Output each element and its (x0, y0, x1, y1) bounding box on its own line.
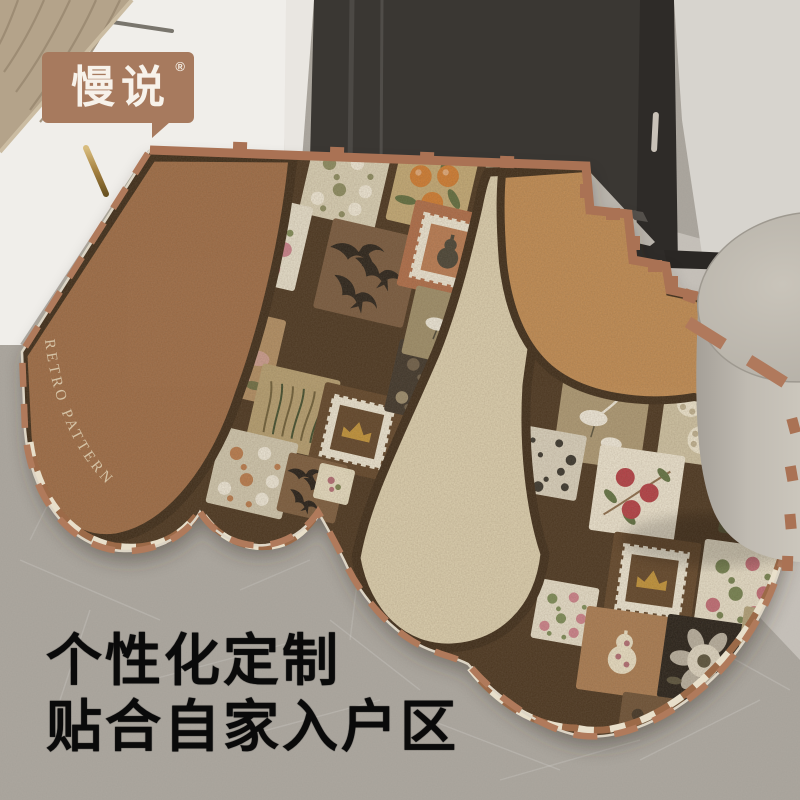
headline-line-2: 贴合自家入户区 (46, 694, 459, 760)
product-photo: RETRO PATTERN (0, 0, 800, 800)
registered-mark: ® (175, 59, 185, 74)
headline-line-1: 个性化定制 (46, 628, 459, 694)
headline: 个性化定制 贴合自家入户区 (46, 628, 459, 760)
door-seam-2 (381, 0, 382, 175)
brand-logo-badge: 慢说 ® (42, 52, 194, 123)
door-seam-1 (350, 0, 352, 170)
brand-logo-text: 慢说 (65, 66, 171, 110)
